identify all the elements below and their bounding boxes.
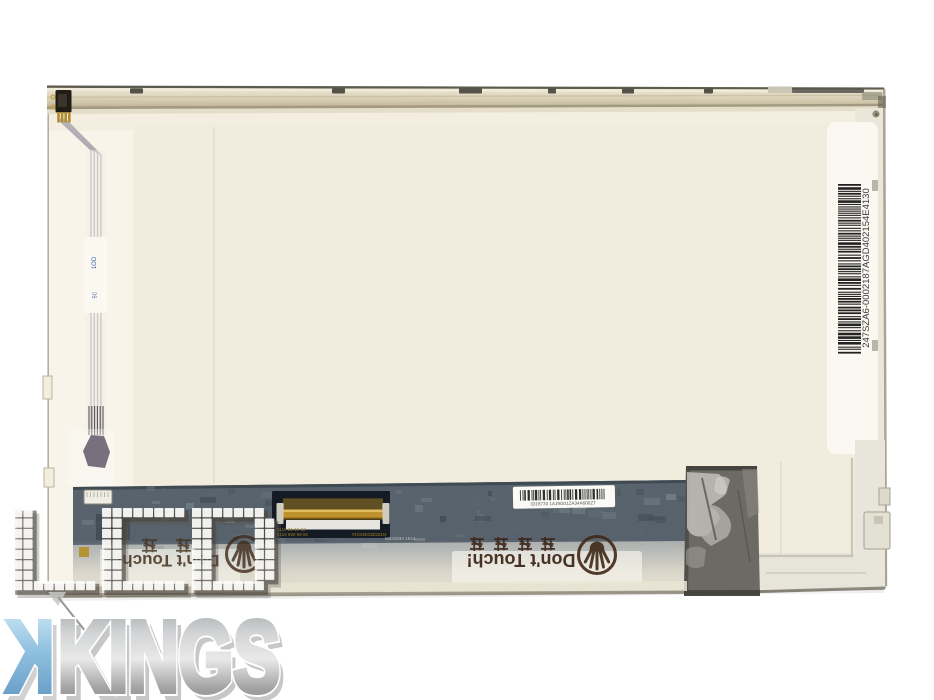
svg-text:KINGS: KINGS <box>58 601 280 700</box>
svg-text:1OD: 1OD <box>92 256 98 269</box>
svg-text:K: K <box>6 601 54 700</box>
svg-text:5C: 5C <box>93 291 99 298</box>
svg-text:6119 890 98 92: 6119 890 98 92 <box>277 532 308 537</box>
svg-text:Don't Touch!: Don't Touch! <box>467 550 576 570</box>
svg-text:M22283A 1514: M22283A 1514 <box>385 536 416 541</box>
svg-text:#1034E03Z2Z1N: #1034E03Z2Z1N <box>352 532 386 537</box>
svg-text:247SZA6-0002187AGD402154E4130: 247SZA6-0002187AGD402154E4130 <box>861 188 872 348</box>
